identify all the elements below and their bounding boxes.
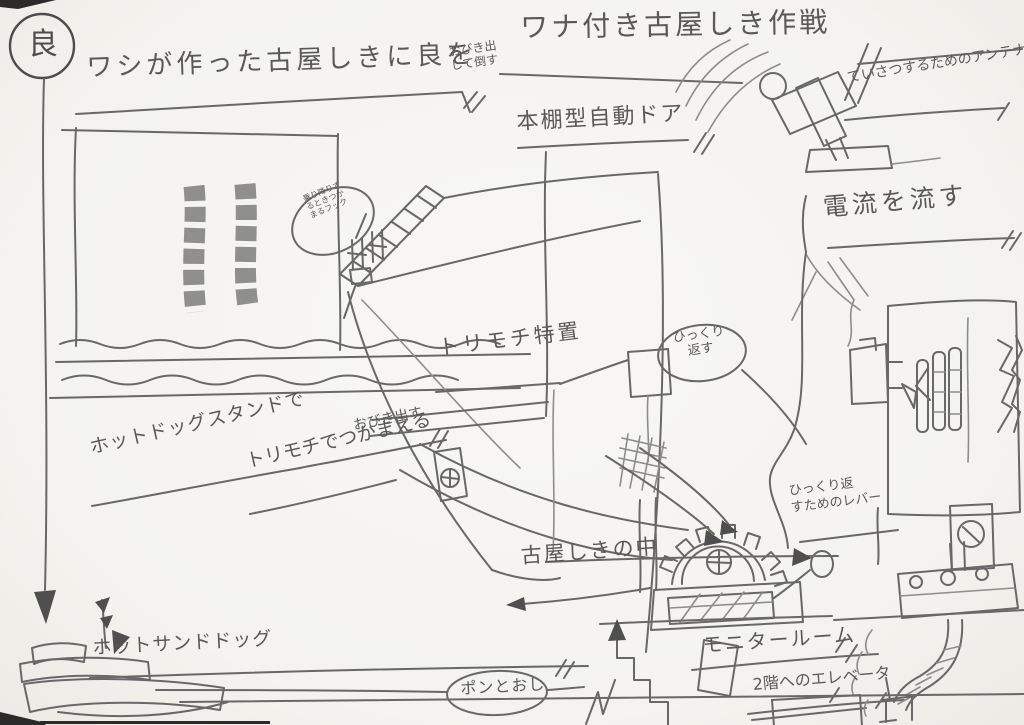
inside-mansion-arrow [506,588,650,611]
gear-arrows-drawing [606,448,738,546]
bookshelf-door-drawing [340,152,688,652]
flip-lever-drawing [774,530,898,598]
plan-sentence-underline [76,92,485,114]
hotdog-stand-drawing [20,597,1024,716]
sketch-canvas [0,0,1024,725]
stairs-drawing [586,619,668,725]
sketch-paper: 良 ワシが作った古屋しきに良を おびき出して倒す ワナ付き古屋しき作戦 本棚型自… [0,0,1024,725]
page-title: ワナ付き古屋しき作戦 [520,7,831,45]
badge-label: 良 [28,28,58,63]
scan-edge-marks [0,0,270,725]
birdlime-device-underline [436,383,560,552]
shock-machine-drawing [850,300,1022,570]
badge-and-pointer-drawing [10,14,74,624]
door-label-underline [518,133,714,154]
